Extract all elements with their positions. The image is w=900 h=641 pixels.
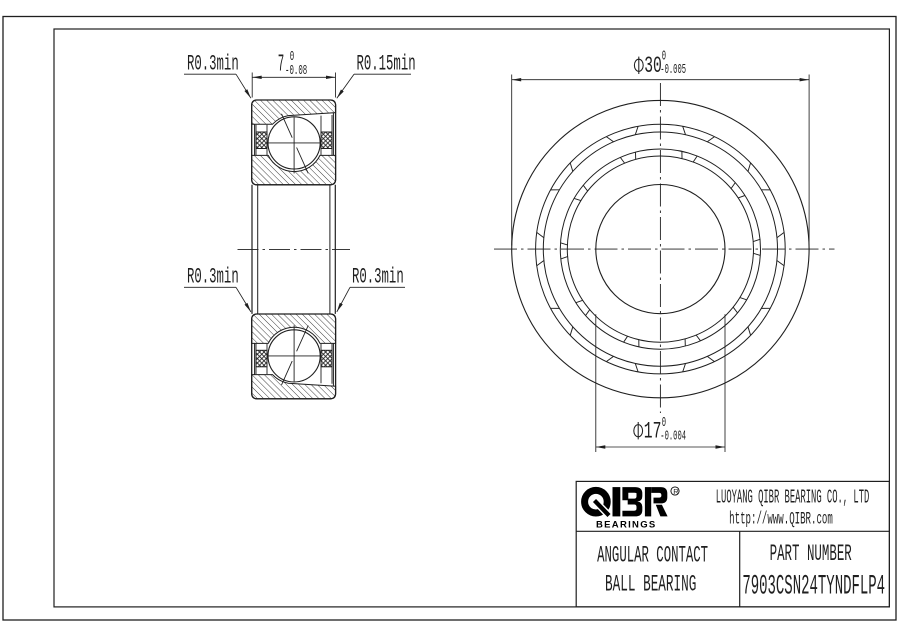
svg-text:LUOYANG QIBR BEARING CO., LTD: LUOYANG QIBR BEARING CO., LTD: [716, 488, 870, 509]
svg-text:-0.004: -0.004: [660, 430, 686, 445]
svg-text:17: 17: [644, 418, 662, 444]
svg-text:ANGULAR CONTACT: ANGULAR CONTACT: [597, 541, 708, 569]
svg-text:BEARINGS: BEARINGS: [596, 520, 657, 531]
svg-text:R0.3min: R0.3min: [187, 52, 239, 77]
svg-text:R: R: [673, 487, 679, 496]
svg-text:BALL BEARING: BALL BEARING: [605, 570, 696, 597]
svg-text:7: 7: [278, 51, 284, 78]
svg-text:R0.3min: R0.3min: [187, 265, 239, 290]
svg-text:-0.005: -0.005: [660, 63, 686, 78]
svg-text:-0.08: -0.08: [285, 64, 307, 79]
svg-text:R0.15min: R0.15min: [357, 52, 416, 77]
svg-text:PART NUMBER: PART NUMBER: [770, 540, 852, 567]
svg-text:7903CSN24TYNDFLP4: 7903CSN24TYNDFLP4: [742, 571, 885, 603]
svg-text:R0.3min: R0.3min: [352, 265, 404, 290]
svg-text:http://www.QIBR.com: http://www.QIBR.com: [729, 509, 833, 529]
svg-text:30: 30: [644, 53, 662, 79]
svg-text:0: 0: [290, 50, 295, 65]
